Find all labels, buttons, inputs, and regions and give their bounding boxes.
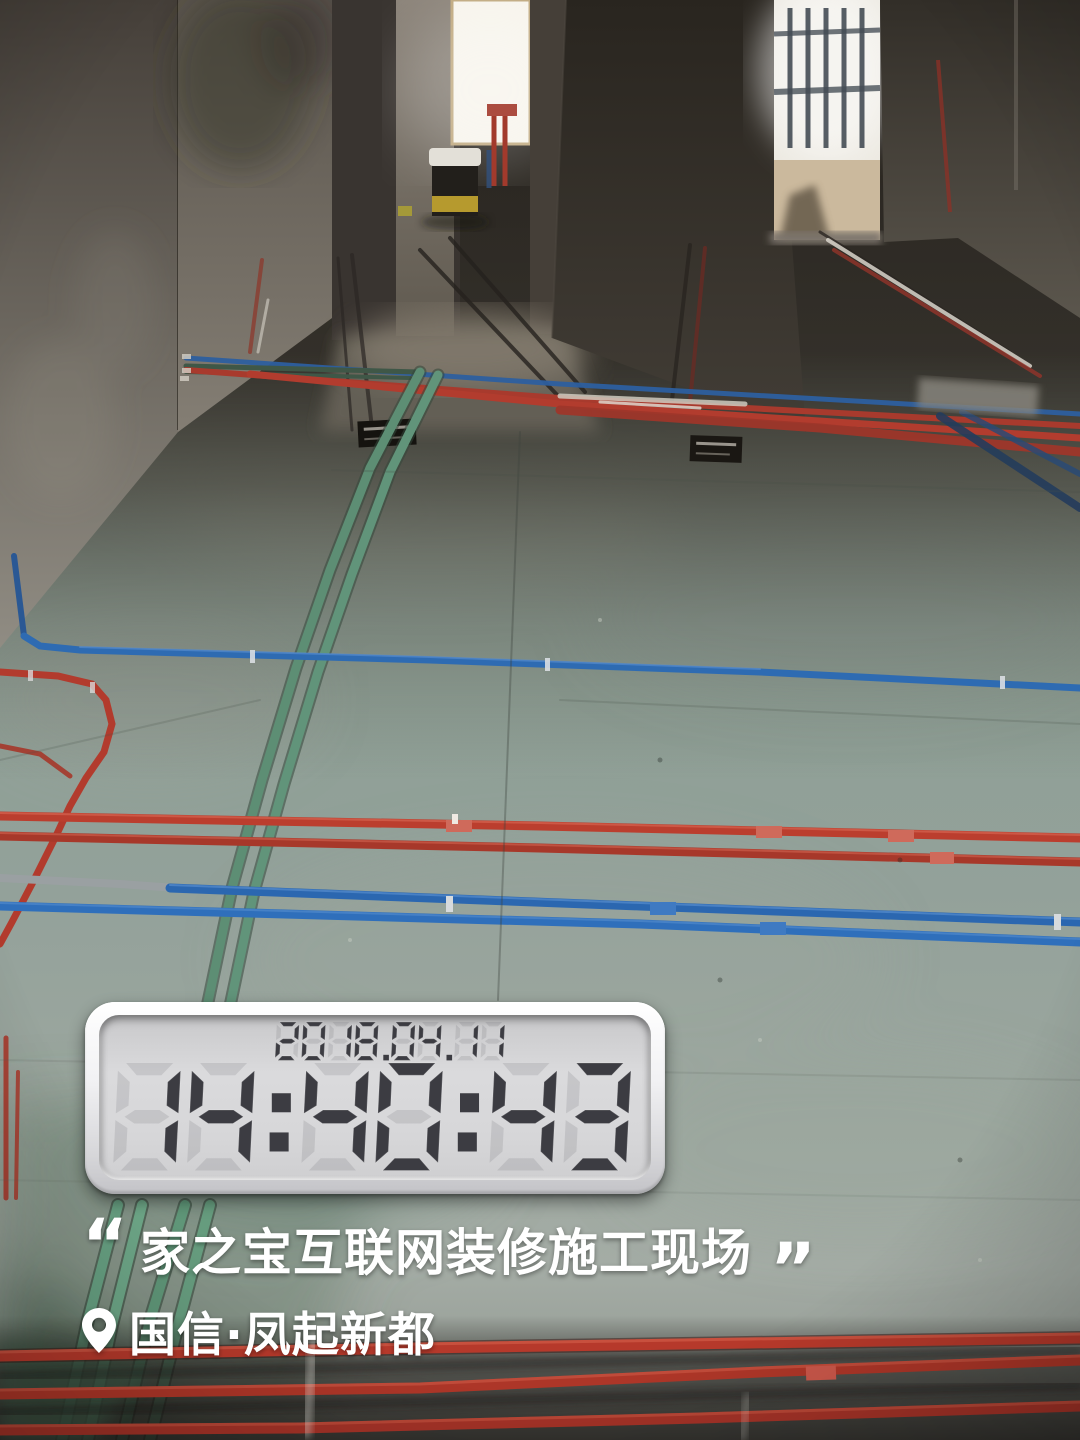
caption-text: 家之宝互联网装修施工现场	[140, 1222, 752, 1284]
screenshot-root: “ 家之宝互联网装修施工现场 ” 国信·凤起新都	[0, 0, 1080, 1440]
clock-lcd	[99, 1015, 651, 1180]
location-pin-icon	[82, 1308, 116, 1353]
caption-line: “ 家之宝互联网装修施工现场 ”	[82, 1222, 816, 1284]
clock-display	[99, 1015, 651, 1180]
location-text: 国信·凤起新都	[129, 1296, 436, 1365]
location-line: 国信·凤起新都	[82, 1296, 436, 1365]
quote-close-icon: ”	[770, 1244, 816, 1294]
timestamp-clock	[85, 1002, 665, 1194]
quote-open-icon: “	[82, 1220, 128, 1270]
